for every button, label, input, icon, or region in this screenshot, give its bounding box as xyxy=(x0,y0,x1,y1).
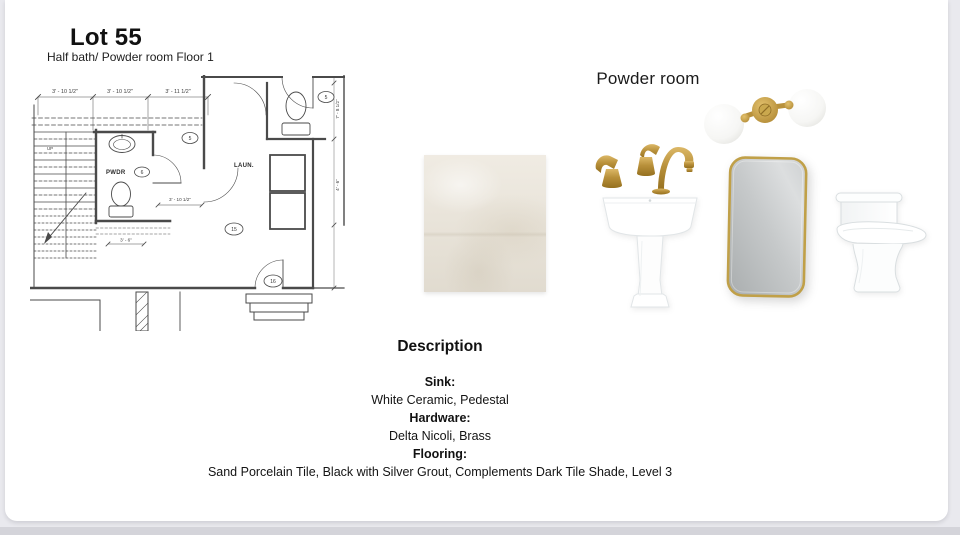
plan-laundry: LAUN. xyxy=(234,139,313,288)
faucet-image xyxy=(594,139,700,195)
room-label-powder: PWDR xyxy=(106,170,126,176)
description-value-sink: White Ceramic, Pedestal xyxy=(120,391,760,409)
plan-washer xyxy=(270,155,305,191)
plan-upper-bath: 5 xyxy=(267,77,334,139)
description-value-flooring: Sand Porcelain Tile, Black with Silver G… xyxy=(120,463,760,481)
page-subtitle: Half bath/ Powder room Floor 1 xyxy=(47,50,214,64)
toilet-tank-lid xyxy=(836,193,902,202)
sconce-globe xyxy=(704,104,744,144)
plan-stairs: UP xyxy=(34,105,96,288)
plan-steps xyxy=(246,294,312,303)
dim-label: 3' - 11 1/2" xyxy=(165,89,190,95)
dim-label: 4' - 6" xyxy=(335,179,340,191)
plan-door-arc xyxy=(234,83,266,115)
sconce-image xyxy=(700,88,830,146)
plan-toilet xyxy=(112,182,131,206)
dim-label: 7' - 8 1/2" xyxy=(335,99,340,119)
bottom-strip xyxy=(0,527,960,535)
toilet-seat xyxy=(837,222,926,244)
plan-door-arc xyxy=(204,168,238,202)
sconce-globe xyxy=(788,89,826,127)
dim-label: 3' - 10 1/2" xyxy=(107,89,133,95)
svg-text:5: 5 xyxy=(325,95,328,101)
svg-text:15: 15 xyxy=(231,227,237,233)
board-heading: Powder room xyxy=(558,69,738,89)
toilet-base xyxy=(853,244,903,292)
stairs-up-label: UP xyxy=(47,146,53,151)
tile-sample-image xyxy=(424,155,546,292)
description-label-sink: Sink: xyxy=(120,373,760,391)
mirror-frame xyxy=(728,157,807,297)
description-label-flooring: Flooring: xyxy=(120,445,760,463)
description-heading: Description xyxy=(120,338,760,356)
svg-text:16: 16 xyxy=(270,279,276,285)
page-title: Lot 55 xyxy=(70,24,142,52)
faucet-handle-right xyxy=(640,144,660,159)
description-label-hardware: Hardware: xyxy=(120,409,760,427)
plan-dryer xyxy=(270,193,305,229)
floor-plan-image: 3' - 10 1/2" 3' - 10 1/2" 3' - 11 1/2" xyxy=(30,75,350,331)
sink-basin xyxy=(603,198,697,236)
pedestal-sink-image xyxy=(600,193,700,312)
svg-text:6: 6 xyxy=(141,170,144,176)
room-label-laundry: LAUN. xyxy=(234,163,254,169)
dim-label: 3' - 6" xyxy=(120,238,132,243)
mirror-image xyxy=(721,155,813,301)
description-section: Description Sink: White Ceramic, Pedesta… xyxy=(120,338,760,481)
dim-label: 3' - 10 1/2" xyxy=(169,197,191,202)
dim-label: 3' - 10 1/2" xyxy=(52,89,78,95)
plan-door-arc xyxy=(153,155,181,183)
toilet-image xyxy=(823,189,936,301)
plan-powder-room: PWDR 6 3' - 6" xyxy=(94,130,181,246)
plan-top-dimensions: 3' - 10 1/2" 3' - 10 1/2" 3' - 11 1/2" xyxy=(36,89,211,130)
description-value-hardware: Delta Nicoli, Brass xyxy=(120,427,760,445)
svg-text:5: 5 xyxy=(189,136,192,142)
plan-door-arc xyxy=(255,260,283,288)
